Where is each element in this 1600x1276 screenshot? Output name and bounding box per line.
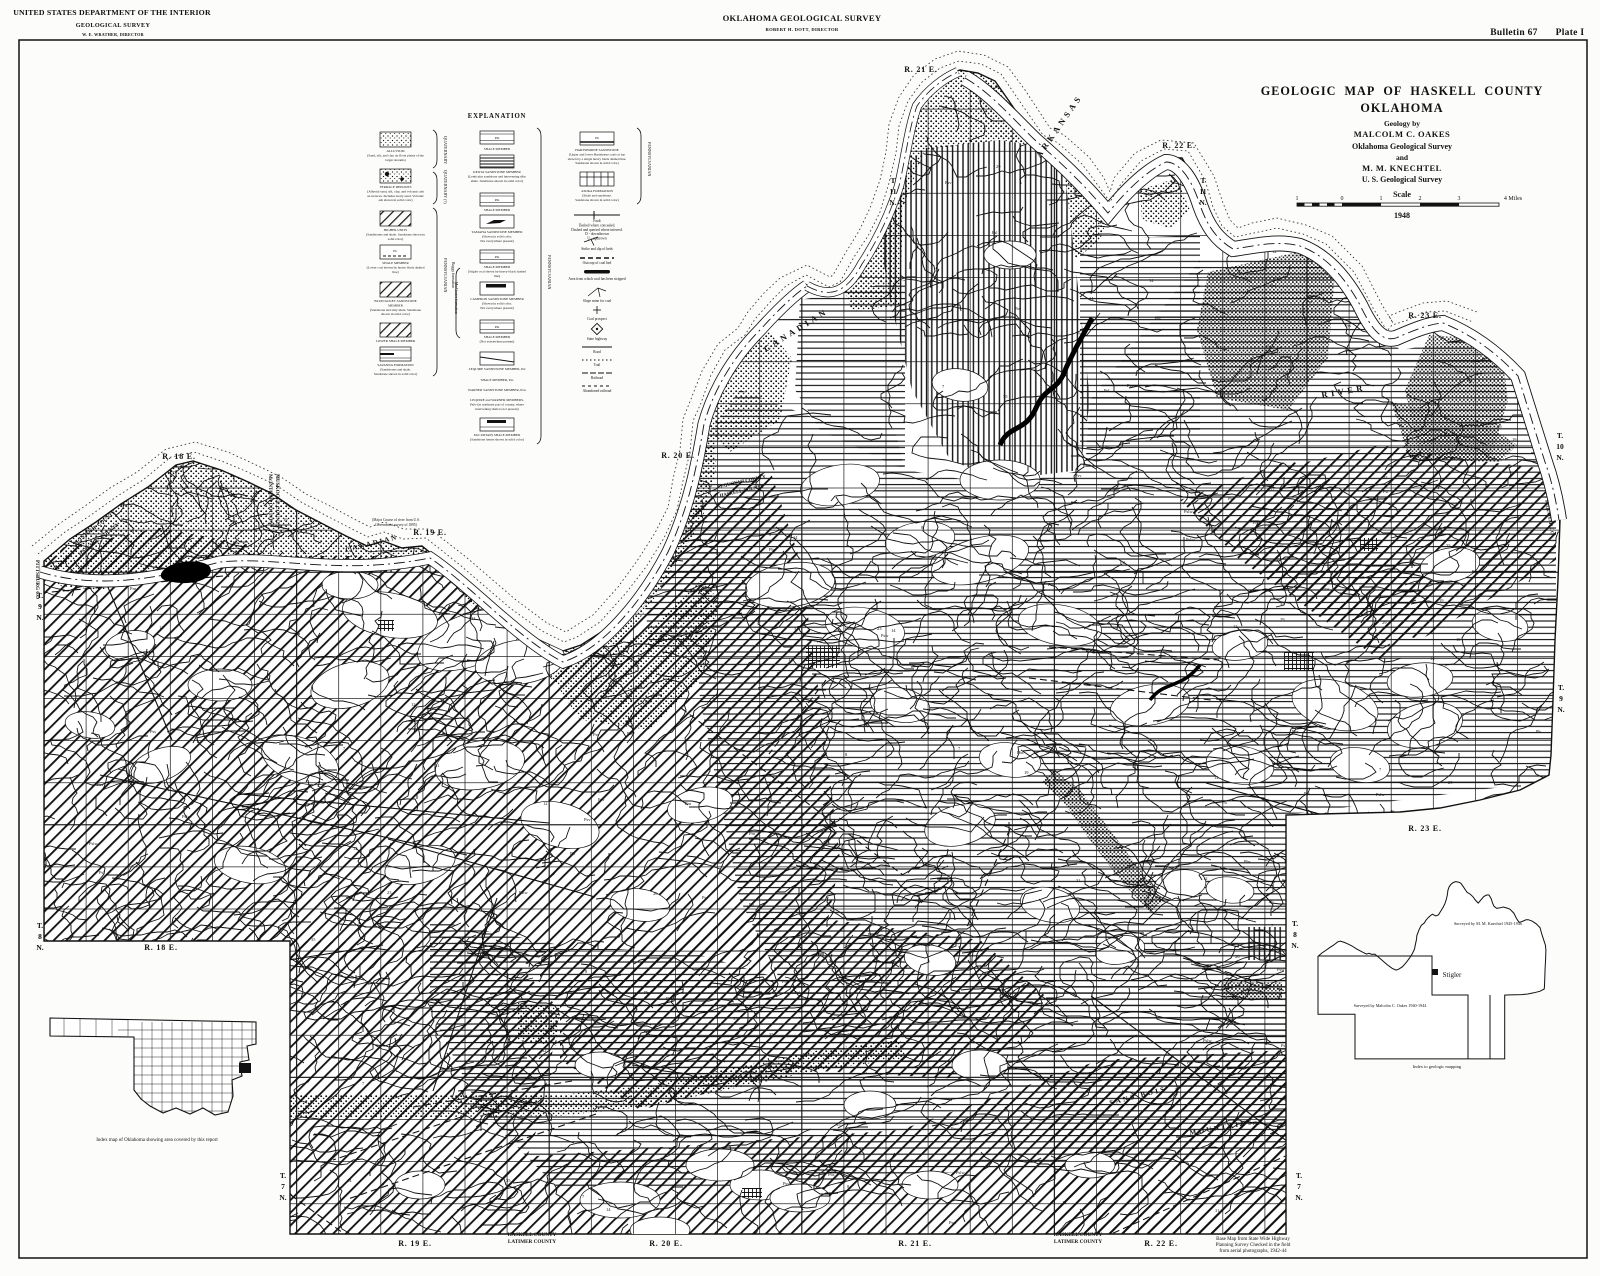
svg-text:Surveyed by Malcolm C. Oakes 1: Surveyed by Malcolm C. Oakes 1940-1944	[1354, 1003, 1428, 1008]
svg-text:Surveyed by M. M. Knechtel 194: Surveyed by M. M. Knechtel 1945-1946	[1454, 921, 1522, 926]
svg-text:Stigler: Stigler	[1443, 971, 1462, 979]
svg-text:Index to geologic mapping: Index to geologic mapping	[1413, 1064, 1462, 1069]
svg-text:Index map of Oklahoma showing: Index map of Oklahoma showing area cover…	[96, 1138, 218, 1143]
